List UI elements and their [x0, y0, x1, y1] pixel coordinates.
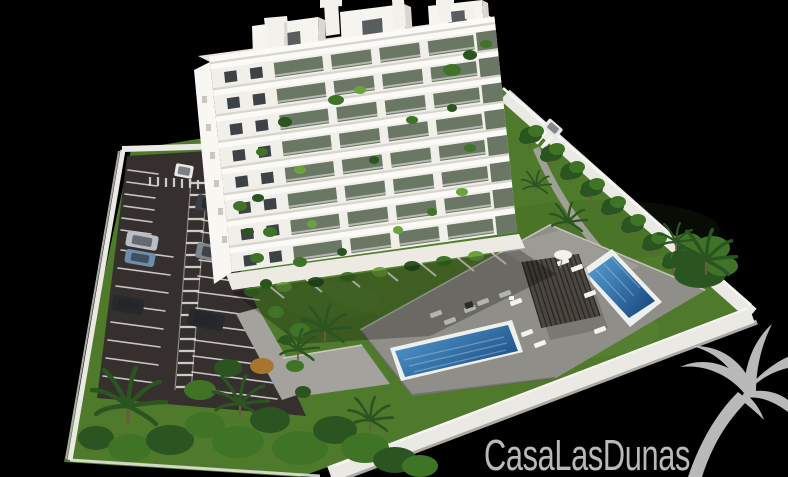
- property-rendering: CasaLasDunas: [0, 0, 788, 477]
- rendering-canvas: CasaLasDunas: [0, 0, 788, 477]
- brand-watermark-text: CasaLasDunas: [484, 431, 690, 477]
- orange-bush: [250, 358, 274, 374]
